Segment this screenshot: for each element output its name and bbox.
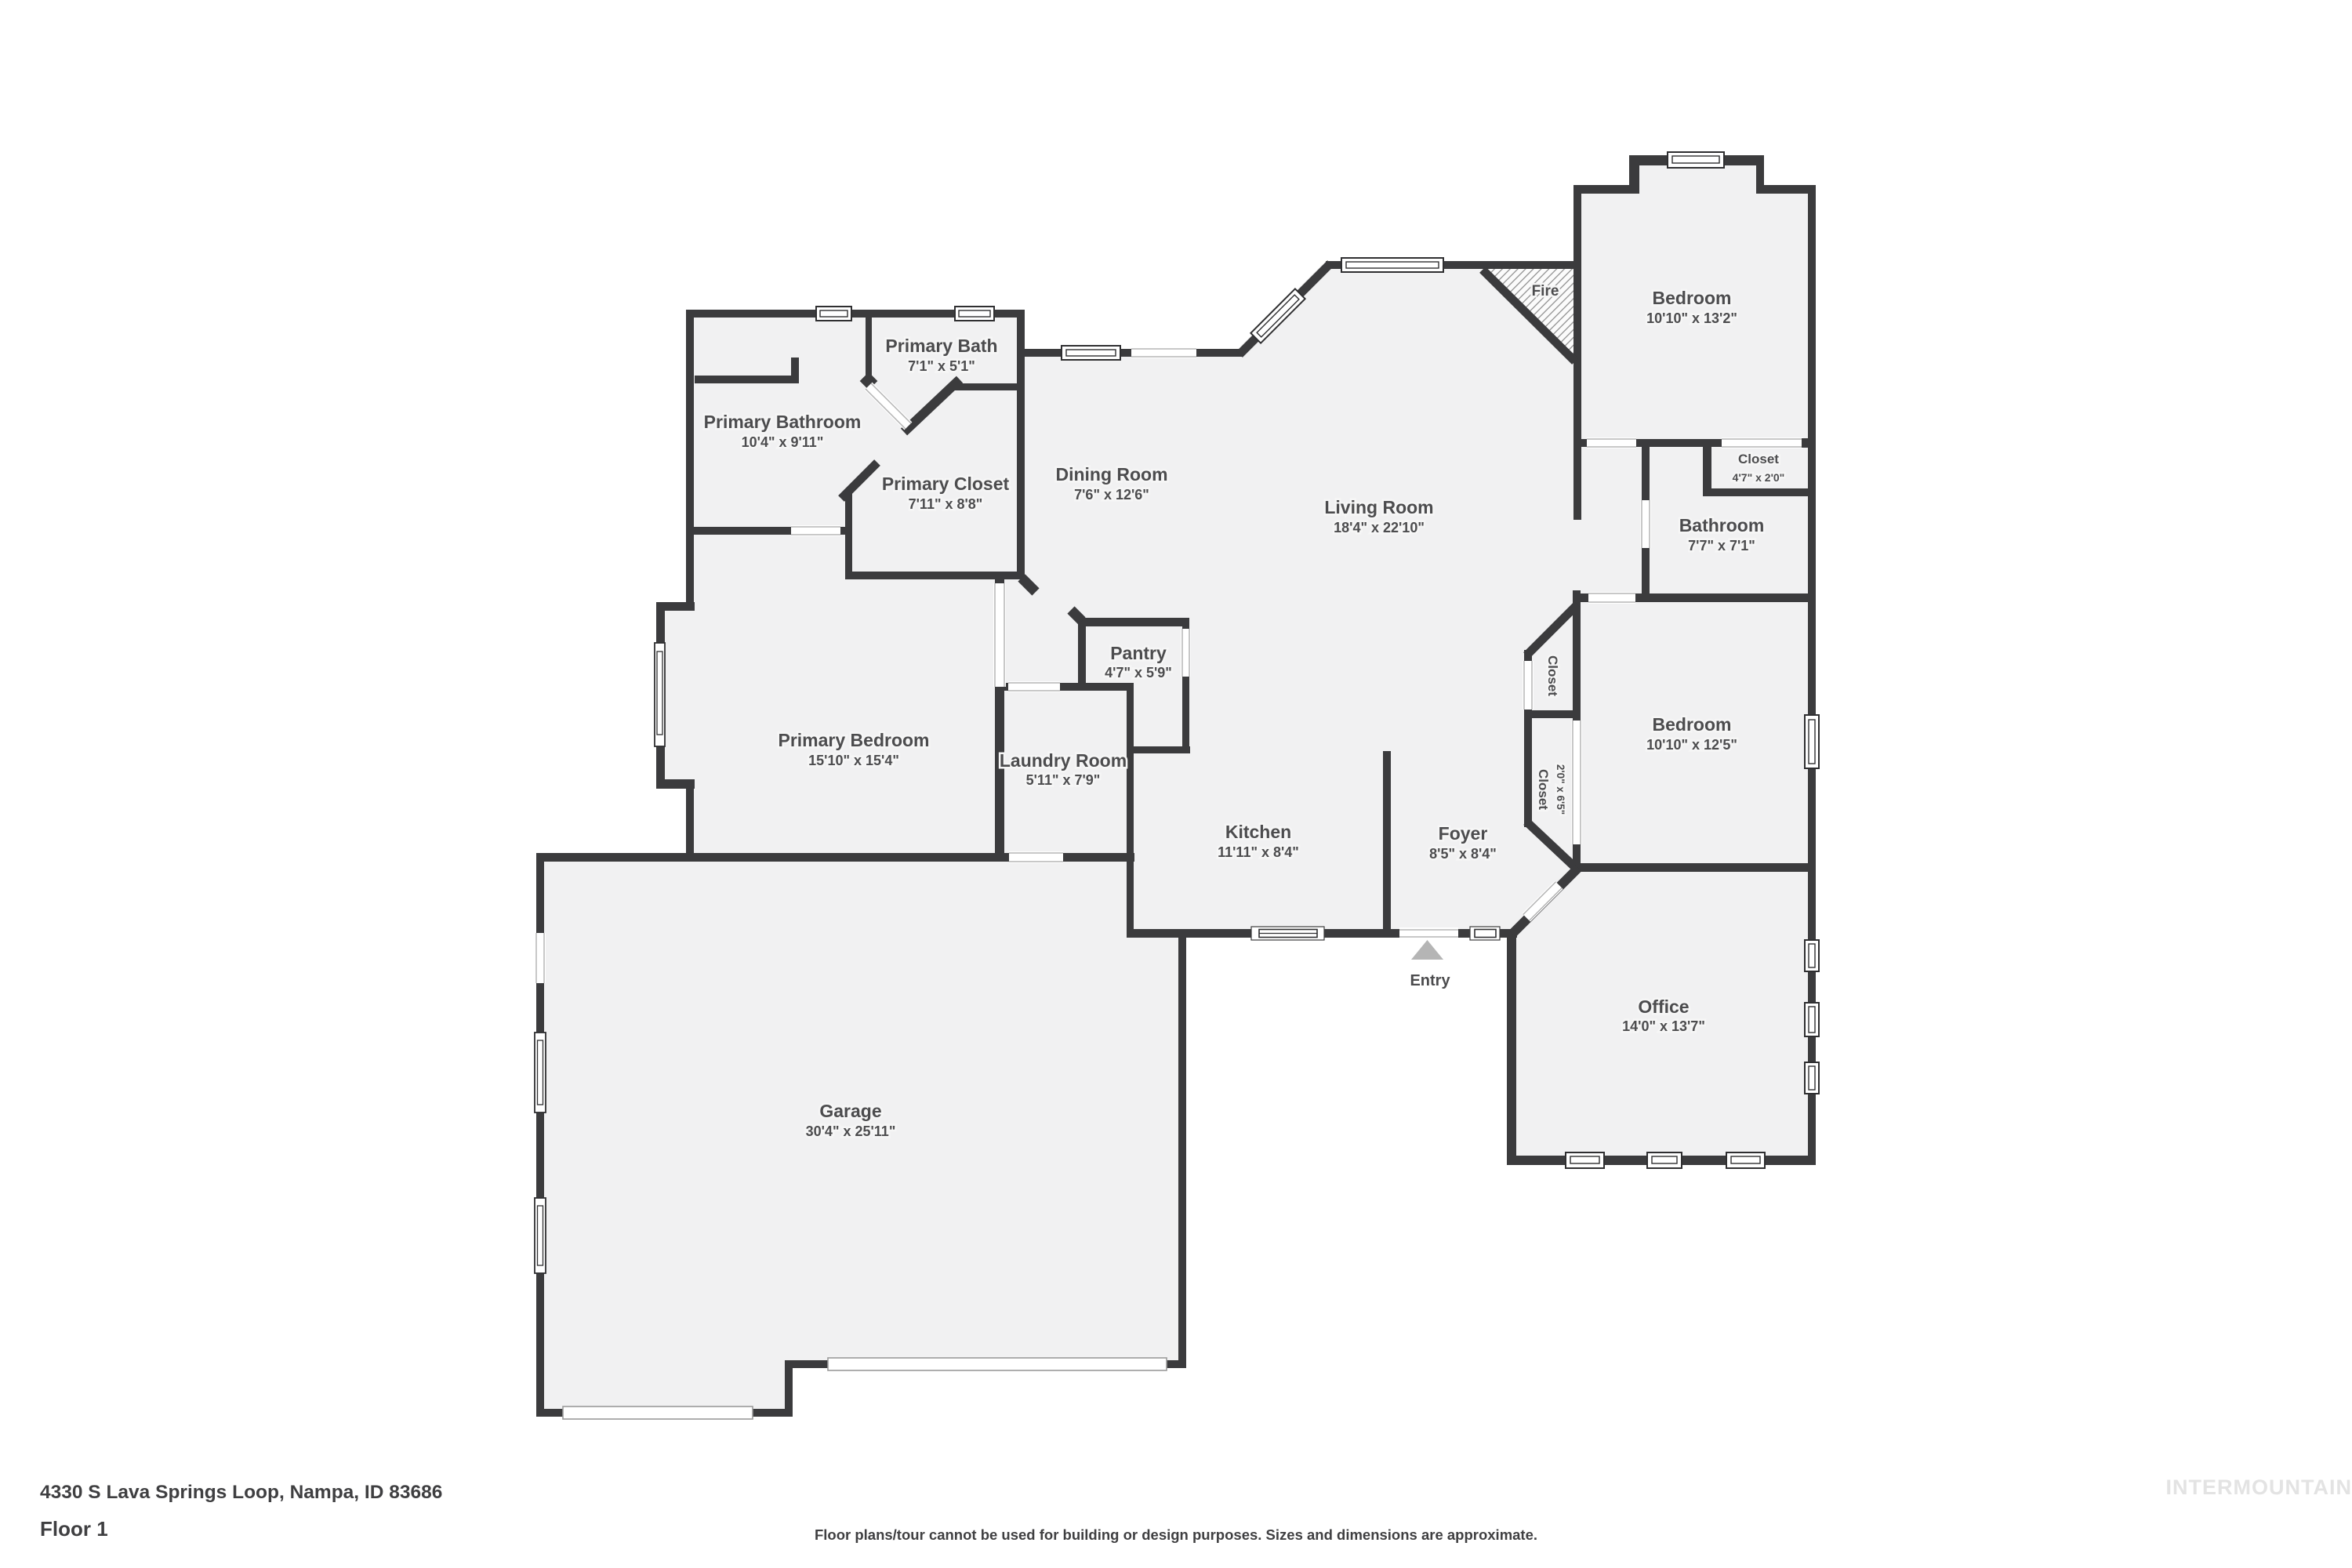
svg-text:Primary Closet: Primary Closet: [882, 474, 1010, 494]
svg-text:10'10" x 12'5": 10'10" x 12'5": [1646, 737, 1737, 753]
svg-text:10'4" x 9'11": 10'4" x 9'11": [742, 434, 824, 450]
svg-text:7'7" x 7'1": 7'7" x 7'1": [1688, 538, 1755, 554]
svg-text:Bedroom: Bedroom: [1653, 288, 1732, 308]
svg-text:Closet: Closet: [1536, 769, 1551, 810]
svg-text:Entry: Entry: [1410, 972, 1450, 989]
svg-text:Living Room: Living Room: [1324, 497, 1433, 517]
svg-text:4'7" x 2'0": 4'7" x 2'0": [1733, 471, 1785, 484]
svg-text:7'6" x 12'6": 7'6" x 12'6": [1074, 487, 1149, 503]
svg-text:7'1" x 5'1": 7'1" x 5'1": [908, 358, 975, 374]
svg-text:14'0" x 13'7": 14'0" x 13'7": [1622, 1018, 1705, 1034]
svg-text:11'11" x 8'4": 11'11" x 8'4": [1218, 844, 1299, 860]
svg-text:4'7" x 5'9": 4'7" x 5'9": [1105, 665, 1172, 681]
svg-text:Floor plans/tour cannot be use: Floor plans/tour cannot be used for buil…: [815, 1526, 1537, 1543]
svg-text:Primary Bathroom: Primary Bathroom: [704, 412, 862, 432]
svg-text:5'11" x 7'9": 5'11" x 7'9": [1026, 772, 1101, 788]
svg-text:Fire: Fire: [1532, 283, 1559, 299]
svg-text:Closet: Closet: [1738, 452, 1779, 466]
svg-text:Kitchen: Kitchen: [1225, 822, 1291, 842]
svg-text:Pantry: Pantry: [1110, 643, 1167, 663]
svg-text:18'4" x 22'10": 18'4" x 22'10": [1334, 520, 1425, 535]
svg-text:Primary Bedroom: Primary Bedroom: [778, 730, 929, 750]
svg-text:4330 S Lava Springs Loop, Namp: 4330 S Lava Springs Loop, Nampa, ID 8368…: [40, 1482, 442, 1503]
svg-text:Dining Room: Dining Room: [1055, 464, 1167, 485]
svg-text:Foyer: Foyer: [1439, 823, 1488, 844]
svg-text:Laundry Room: Laundry Room: [1000, 750, 1127, 771]
svg-text:15'10" x 15'4": 15'10" x 15'4": [808, 753, 899, 768]
svg-text:10'10" x 13'2": 10'10" x 13'2": [1646, 310, 1737, 326]
svg-text:2'0" x 6'5": 2'0" x 6'5": [1555, 764, 1566, 815]
svg-text:INTERMOUNTAIN: INTERMOUNTAIN: [2166, 1475, 2352, 1499]
svg-text:8'5" x 8'4": 8'5" x 8'4": [1429, 846, 1497, 862]
svg-text:Closet: Closet: [1545, 655, 1560, 696]
svg-text:7'11" x 8'8": 7'11" x 8'8": [909, 496, 983, 512]
svg-text:30'4" x 25'11": 30'4" x 25'11": [806, 1123, 896, 1139]
svg-text:Bathroom: Bathroom: [1679, 515, 1765, 535]
svg-text:Office: Office: [1638, 996, 1689, 1017]
svg-text:Bedroom: Bedroom: [1653, 714, 1732, 735]
svg-text:Floor 1: Floor 1: [40, 1517, 108, 1541]
svg-text:Garage: Garage: [819, 1101, 881, 1121]
svg-text:Primary Bath: Primary Bath: [885, 336, 997, 356]
